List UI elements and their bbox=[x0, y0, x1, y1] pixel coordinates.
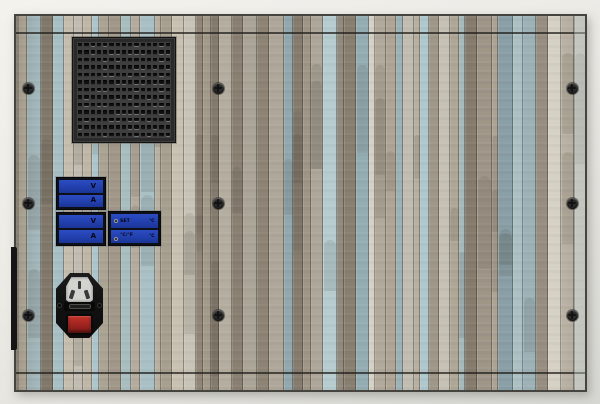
meter-module-top: V A bbox=[56, 177, 106, 210]
plank-grain-mark bbox=[525, 299, 534, 351]
plank-grain-mark bbox=[294, 112, 301, 182]
grille-hole bbox=[78, 65, 82, 69]
grille-hole bbox=[109, 88, 113, 92]
grille-hole bbox=[97, 80, 101, 84]
grille-hole bbox=[128, 73, 132, 77]
grille-hole bbox=[141, 80, 145, 84]
grille-hole bbox=[128, 50, 132, 54]
grille-hole bbox=[103, 125, 107, 129]
grille-hole bbox=[78, 133, 82, 137]
grille-hole bbox=[153, 88, 157, 92]
voltmeter-display: V bbox=[59, 180, 103, 193]
power-switch-recess bbox=[66, 314, 93, 335]
grille-hole bbox=[109, 125, 113, 129]
wood-plank bbox=[477, 16, 492, 390]
grille-hole bbox=[134, 88, 138, 92]
grille-hole bbox=[153, 103, 157, 107]
grille-hole bbox=[78, 73, 82, 77]
grille-hole bbox=[153, 80, 157, 84]
plank-grain-mark bbox=[563, 54, 573, 133]
grille-hole bbox=[122, 118, 126, 122]
grille-hole bbox=[134, 95, 138, 99]
grille-hole bbox=[147, 133, 151, 137]
wood-plank bbox=[536, 16, 548, 390]
grille-hole bbox=[141, 133, 145, 137]
grille-hole bbox=[134, 133, 138, 137]
grille-hole bbox=[153, 65, 157, 69]
grille-hole bbox=[91, 43, 95, 47]
amp-unit-label: A bbox=[91, 233, 96, 240]
grille-hole bbox=[166, 125, 170, 129]
iec-c14-inlet bbox=[66, 277, 93, 302]
grille-hole bbox=[91, 110, 95, 114]
grille-hole bbox=[78, 43, 82, 47]
grille-hole bbox=[166, 65, 170, 69]
panel-screw bbox=[213, 198, 224, 209]
grille-hole bbox=[128, 80, 132, 84]
grille-hole bbox=[103, 58, 107, 62]
wood-plank bbox=[196, 16, 203, 390]
wood-plank bbox=[513, 16, 523, 390]
plank-grain-mark bbox=[460, 253, 464, 337]
wood-plank bbox=[386, 16, 396, 390]
grille-hole bbox=[147, 103, 151, 107]
wood-plank bbox=[203, 16, 211, 390]
power-entry-module bbox=[56, 273, 103, 338]
grille-hole bbox=[147, 118, 151, 122]
celsius-unit-label: °C bbox=[148, 218, 154, 223]
panel-screw bbox=[23, 310, 34, 321]
grille-hole bbox=[84, 103, 88, 107]
wood-plank bbox=[41, 16, 53, 390]
plank-grain-mark bbox=[212, 136, 218, 182]
grille-hole bbox=[122, 88, 126, 92]
fuse-drawer[interactable] bbox=[69, 304, 91, 309]
grille-hole bbox=[109, 58, 113, 62]
wood-plank bbox=[243, 16, 257, 390]
wood-plank bbox=[450, 16, 459, 390]
grille-hole bbox=[166, 80, 170, 84]
wood-plank bbox=[356, 16, 369, 390]
grille-hole bbox=[91, 133, 95, 137]
grille-hole bbox=[166, 133, 170, 137]
grille-hole bbox=[103, 43, 107, 47]
grille-hole bbox=[141, 88, 145, 92]
grille-hole bbox=[103, 88, 107, 92]
grille-hole bbox=[166, 58, 170, 62]
grille-hole bbox=[116, 133, 120, 137]
grille-hole bbox=[128, 58, 132, 62]
voltmeter-display: V bbox=[59, 215, 103, 228]
grille-hole bbox=[78, 103, 82, 107]
grille-hole bbox=[141, 110, 145, 114]
grille-hole bbox=[153, 125, 157, 129]
plank-grain-mark bbox=[376, 66, 384, 174]
grille-hole bbox=[97, 65, 101, 69]
panel-screw bbox=[23, 83, 34, 94]
celsius-fahrenheit-label: °C/°F bbox=[120, 232, 133, 237]
grille-hole bbox=[109, 133, 113, 137]
grille-hole bbox=[116, 103, 120, 107]
grille-hole bbox=[147, 80, 151, 84]
plank-grain-mark bbox=[42, 140, 51, 203]
grille-hole bbox=[91, 95, 95, 99]
plank-grain-mark bbox=[233, 168, 241, 212]
grille-hole bbox=[84, 80, 88, 84]
grille-hole bbox=[159, 43, 163, 47]
plank-grain-mark bbox=[387, 152, 394, 190]
meter-module-bottom: V A bbox=[56, 212, 106, 246]
grille-hole bbox=[84, 73, 88, 77]
grille-hole bbox=[84, 88, 88, 92]
grille-hole bbox=[122, 80, 126, 84]
grille-hole bbox=[109, 80, 113, 84]
volt-unit-label: V bbox=[91, 183, 96, 190]
grille-hole bbox=[78, 88, 82, 92]
grille-hole bbox=[153, 43, 157, 47]
grille-hole bbox=[134, 125, 138, 129]
grille-hole bbox=[141, 118, 145, 122]
wood-plank bbox=[429, 16, 439, 390]
grille-hole bbox=[153, 73, 157, 77]
grille-hole bbox=[97, 73, 101, 77]
grille-hole bbox=[116, 73, 120, 77]
panel-top-seam bbox=[16, 32, 585, 34]
grille-hole bbox=[159, 95, 163, 99]
grille-hole bbox=[122, 125, 126, 129]
grille-hole bbox=[128, 110, 132, 114]
grille-hole bbox=[91, 58, 95, 62]
grille-hole bbox=[141, 125, 145, 129]
grille-hole bbox=[116, 65, 120, 69]
grille-hole bbox=[159, 58, 163, 62]
grille-hole bbox=[84, 118, 88, 122]
wood-plank bbox=[439, 16, 450, 390]
grille-hole bbox=[116, 118, 120, 122]
grille-hole bbox=[116, 88, 120, 92]
grille-hole bbox=[147, 88, 151, 92]
mode-button[interactable] bbox=[114, 237, 118, 241]
plank-grain-mark bbox=[358, 66, 367, 152]
plank-grain-mark bbox=[500, 234, 511, 275]
wood-plank bbox=[396, 16, 403, 390]
grille-hole bbox=[103, 50, 107, 54]
wood-plank bbox=[548, 16, 561, 390]
grille-hole bbox=[91, 125, 95, 129]
grille-hole bbox=[116, 43, 120, 47]
ammeter-display: A bbox=[59, 230, 103, 243]
grille-hole bbox=[128, 95, 132, 99]
grille-hole bbox=[97, 125, 101, 129]
grille-hole bbox=[141, 65, 145, 69]
wood-plank bbox=[184, 16, 196, 390]
grille-hole bbox=[103, 73, 107, 77]
grille-hole bbox=[78, 58, 82, 62]
grille-hole bbox=[166, 50, 170, 54]
grille-hole bbox=[97, 50, 101, 54]
grille-hole bbox=[166, 88, 170, 92]
grille-hole bbox=[122, 50, 126, 54]
grille-hole bbox=[128, 118, 132, 122]
grille-hole bbox=[122, 133, 126, 137]
grille-hole bbox=[159, 133, 163, 137]
grille-hole bbox=[91, 118, 95, 122]
grille-hole bbox=[78, 110, 82, 114]
grille-hole bbox=[166, 43, 170, 47]
grille-hole bbox=[116, 58, 120, 62]
grille-hole bbox=[122, 43, 126, 47]
grille-hole bbox=[103, 133, 107, 137]
wood-plank bbox=[420, 16, 429, 390]
grille-hole bbox=[159, 65, 163, 69]
grille-hole bbox=[97, 118, 101, 122]
grille-hole bbox=[78, 125, 82, 129]
grille-hole bbox=[141, 103, 145, 107]
grille-hole bbox=[84, 65, 88, 69]
wood-plank bbox=[323, 16, 337, 390]
plank-grain-mark bbox=[312, 82, 321, 168]
grille-hole bbox=[84, 58, 88, 62]
grille-hole bbox=[103, 110, 107, 114]
panel-screw bbox=[213, 83, 224, 94]
panel-screw bbox=[567, 198, 578, 209]
module-screw-right bbox=[98, 304, 101, 307]
grille-hole bbox=[122, 65, 126, 69]
grille-hole bbox=[84, 43, 88, 47]
grille-hole bbox=[103, 80, 107, 84]
grille-hole bbox=[153, 95, 157, 99]
grille-hole bbox=[141, 58, 145, 62]
grille-hole bbox=[141, 43, 145, 47]
grille-hole bbox=[84, 95, 88, 99]
grille-hole bbox=[97, 110, 101, 114]
grille-hole bbox=[147, 43, 151, 47]
grille-hole bbox=[128, 65, 132, 69]
grille-hole bbox=[97, 133, 101, 137]
grille-hole bbox=[116, 50, 120, 54]
wood-plank bbox=[375, 16, 386, 390]
grille-hole bbox=[122, 110, 126, 114]
panel-bottom-seam bbox=[16, 372, 585, 374]
grille-hole bbox=[97, 103, 101, 107]
plank-grain-mark bbox=[197, 215, 202, 251]
grille-hole bbox=[159, 73, 163, 77]
grille-hole bbox=[147, 110, 151, 114]
grille-hole bbox=[134, 73, 138, 77]
grille-hole bbox=[84, 110, 88, 114]
grille-hole bbox=[147, 65, 151, 69]
grille-hole bbox=[147, 95, 151, 99]
grille-hole bbox=[116, 95, 120, 99]
line-pin-slot bbox=[69, 290, 76, 300]
set-label: SET bbox=[120, 218, 130, 223]
grille-hole bbox=[109, 103, 113, 107]
grille-hole bbox=[97, 58, 101, 62]
grille-hole bbox=[122, 95, 126, 99]
panel-screw bbox=[567, 83, 578, 94]
wood-plank bbox=[311, 16, 323, 390]
grille-hole bbox=[134, 58, 138, 62]
wood-plank bbox=[303, 16, 311, 390]
set-button[interactable] bbox=[114, 219, 118, 223]
grille-hole bbox=[159, 80, 163, 84]
wood-rear-panel: V A V A SET °C °C/°F °C bbox=[14, 14, 587, 392]
module-screw-left bbox=[58, 304, 61, 307]
plank-grain-mark bbox=[325, 241, 335, 290]
panel-screw bbox=[213, 310, 224, 321]
grille-hole bbox=[166, 95, 170, 99]
temp-set-row: SET °C bbox=[111, 214, 158, 228]
power-rocker-switch[interactable] bbox=[68, 316, 91, 333]
temp-mode-row: °C/°F °C bbox=[111, 230, 158, 244]
grille-hole bbox=[122, 73, 126, 77]
grille-hole bbox=[116, 80, 120, 84]
grille-hole bbox=[97, 43, 101, 47]
wood-plank bbox=[269, 16, 284, 390]
wood-plank bbox=[293, 16, 303, 390]
grille-hole bbox=[109, 118, 113, 122]
grille-hole bbox=[122, 58, 126, 62]
grille-hole bbox=[141, 73, 145, 77]
grille-hole bbox=[166, 103, 170, 107]
wood-plank bbox=[257, 16, 269, 390]
wood-plank bbox=[523, 16, 536, 390]
grille-hole bbox=[91, 103, 95, 107]
grille-hole bbox=[153, 133, 157, 137]
plank-grain-mark bbox=[29, 270, 39, 337]
wood-plank bbox=[284, 16, 293, 390]
grille-hole bbox=[166, 73, 170, 77]
grille-hole bbox=[153, 118, 157, 122]
ground-pin-slot bbox=[78, 281, 81, 289]
grille-hole bbox=[78, 50, 82, 54]
wood-plank bbox=[232, 16, 243, 390]
grille-hole bbox=[153, 50, 157, 54]
grille-hole bbox=[116, 125, 120, 129]
grille-hole bbox=[128, 43, 132, 47]
grille-hole bbox=[103, 103, 107, 107]
grille-hole bbox=[153, 110, 157, 114]
side-panel-protrusion bbox=[11, 247, 17, 350]
grille-hole bbox=[78, 95, 82, 99]
grille-hole bbox=[134, 50, 138, 54]
grille-hole bbox=[97, 95, 101, 99]
grille-hole bbox=[103, 95, 107, 99]
grille-hole bbox=[91, 80, 95, 84]
grille-hole bbox=[128, 125, 132, 129]
plank-grain-mark bbox=[479, 177, 490, 268]
grille-hole bbox=[147, 73, 151, 77]
grille-hole bbox=[109, 95, 113, 99]
grille-hole bbox=[97, 88, 101, 92]
grille-hole bbox=[91, 88, 95, 92]
render-viewport: V A V A SET °C °C/°F °C bbox=[0, 0, 600, 404]
grille-hole bbox=[166, 118, 170, 122]
grille-hole bbox=[78, 118, 82, 122]
wood-plank bbox=[403, 16, 414, 390]
grille-hole bbox=[128, 133, 132, 137]
wood-plank bbox=[344, 16, 356, 390]
grille-hole bbox=[134, 80, 138, 84]
grille-hole bbox=[159, 110, 163, 114]
grille-hole bbox=[159, 118, 163, 122]
plank-grain-mark bbox=[493, 191, 497, 291]
grille-hole bbox=[109, 73, 113, 77]
volt-unit-label: V bbox=[91, 218, 96, 225]
grille-hole bbox=[153, 58, 157, 62]
plank-grain-mark bbox=[29, 156, 39, 229]
grille-hole bbox=[159, 103, 163, 107]
grille-hole bbox=[84, 133, 88, 137]
grille-hole bbox=[128, 103, 132, 107]
grille-hole bbox=[147, 58, 151, 62]
plank-grain-mark bbox=[415, 136, 419, 178]
ventilation-grille bbox=[72, 37, 176, 143]
grille-hole bbox=[109, 110, 113, 114]
grille-hole bbox=[134, 103, 138, 107]
neutral-pin-slot bbox=[84, 290, 91, 300]
fuse-holder-recess bbox=[64, 302, 95, 311]
grille-hole bbox=[109, 43, 113, 47]
plank-grain-mark bbox=[451, 209, 457, 240]
temperature-controller: SET °C °C/°F °C bbox=[108, 211, 161, 246]
panel-screw bbox=[567, 310, 578, 321]
grille-hole bbox=[91, 73, 95, 77]
panel-screw bbox=[23, 198, 34, 209]
grille-hole bbox=[91, 65, 95, 69]
celsius-unit-label: °C bbox=[148, 234, 154, 239]
grille-hole bbox=[128, 88, 132, 92]
grille-hole-grid bbox=[77, 42, 171, 138]
grille-hole bbox=[141, 50, 145, 54]
ammeter-display: A bbox=[59, 195, 103, 208]
grille-hole bbox=[159, 125, 163, 129]
grille-hole bbox=[109, 50, 113, 54]
grille-hole bbox=[84, 50, 88, 54]
grille-hole bbox=[134, 110, 138, 114]
grille-hole bbox=[84, 125, 88, 129]
grille-hole bbox=[116, 110, 120, 114]
wood-plank bbox=[465, 16, 477, 390]
grille-hole bbox=[159, 88, 163, 92]
grille-hole bbox=[134, 43, 138, 47]
grille-hole bbox=[166, 110, 170, 114]
wood-plank bbox=[337, 16, 344, 390]
grille-hole bbox=[147, 125, 151, 129]
plank-grain-mark bbox=[185, 232, 194, 274]
plank-grain-mark bbox=[285, 160, 291, 214]
grille-hole bbox=[103, 118, 107, 122]
grille-hole bbox=[122, 103, 126, 107]
grille-hole bbox=[78, 80, 82, 84]
grille-hole bbox=[91, 50, 95, 54]
grille-hole bbox=[141, 95, 145, 99]
grille-hole bbox=[103, 65, 107, 69]
grille-hole bbox=[147, 50, 151, 54]
grille-hole bbox=[134, 118, 138, 122]
amp-unit-label: A bbox=[91, 197, 96, 204]
wood-plank bbox=[498, 16, 513, 390]
grille-hole bbox=[159, 50, 163, 54]
grille-hole bbox=[109, 65, 113, 69]
grille-hole bbox=[134, 65, 138, 69]
